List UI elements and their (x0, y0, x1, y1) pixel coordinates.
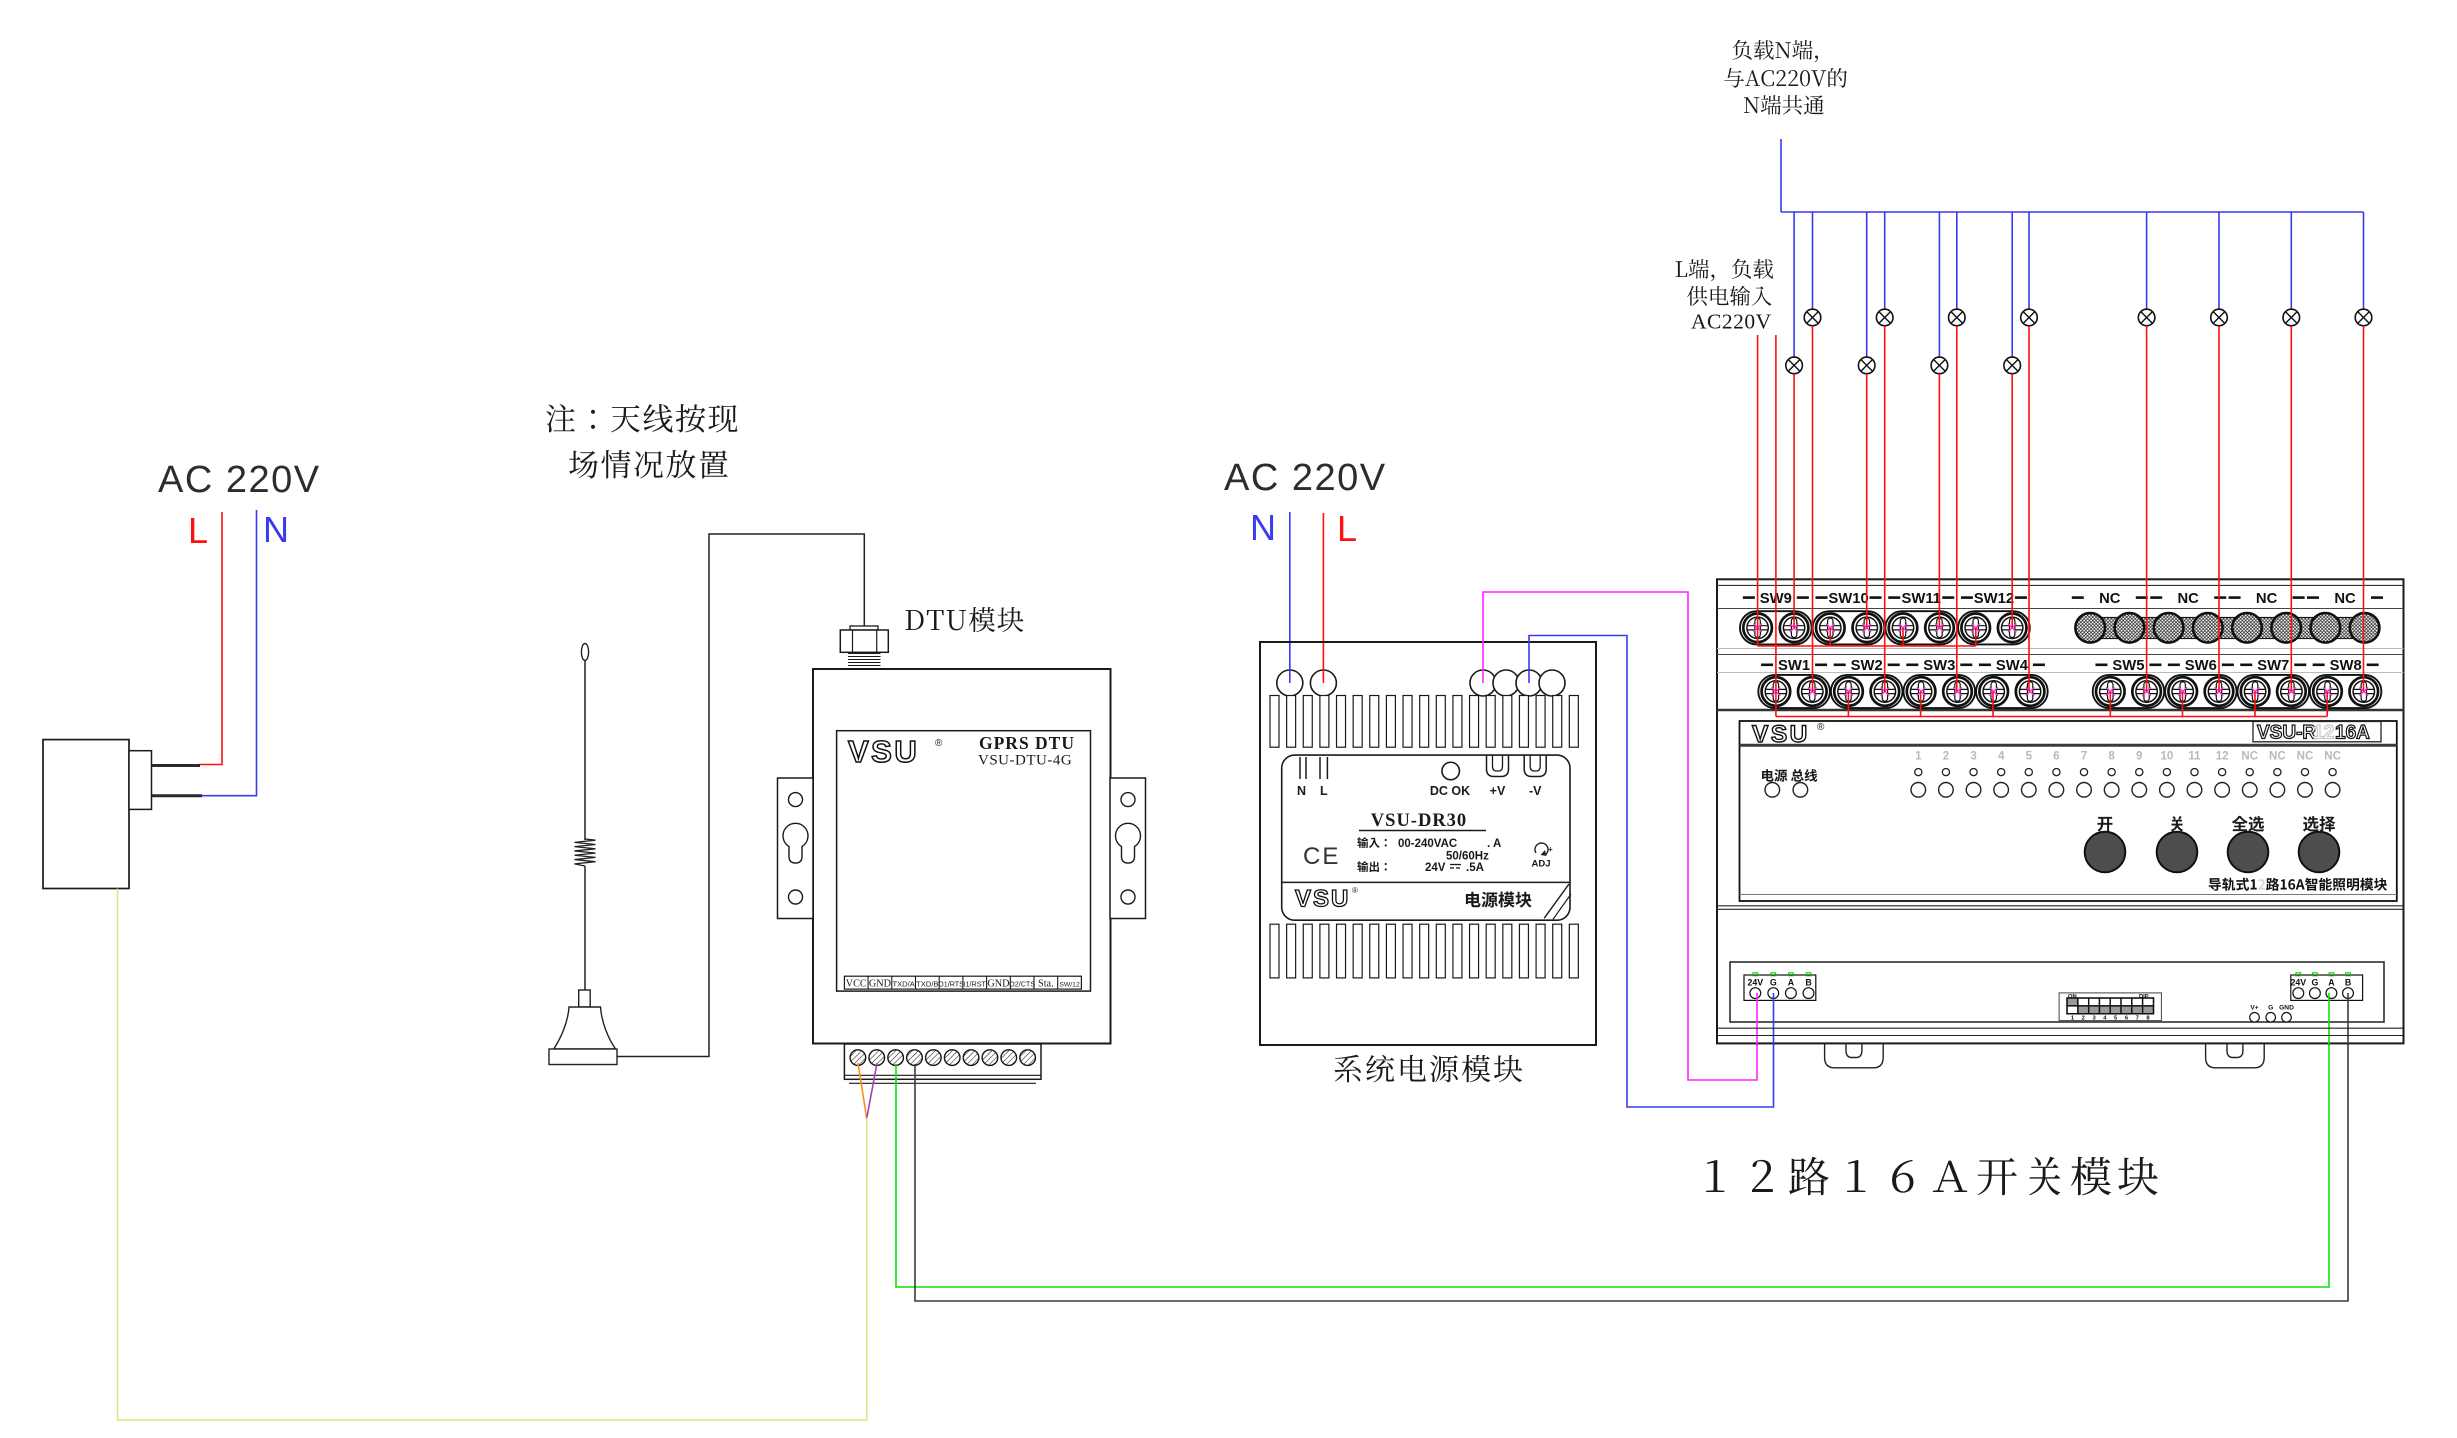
svg-text:VSU: VSU (848, 734, 919, 769)
svg-text:®: ® (1352, 886, 1358, 895)
svg-text:9: 9 (2136, 751, 2142, 763)
svg-text:NC: NC (2099, 591, 2121, 607)
svg-text:.5A: .5A (1466, 862, 1484, 874)
svg-text:NC: NC (2178, 591, 2200, 607)
svg-text:GND: GND (987, 978, 1009, 989)
svg-text:O2/CTS: O2/CTS (1009, 979, 1035, 988)
svg-text:®: ® (1817, 722, 1825, 733)
svg-text:®: ® (935, 738, 943, 749)
svg-text:ADJ: ADJ (1531, 859, 1550, 870)
svg-text:GND: GND (2279, 1005, 2294, 1012)
svg-text:AC220V: AC220V (1691, 310, 1772, 334)
svg-text:SW10: SW10 (1828, 591, 1868, 607)
svg-text:+: + (1548, 845, 1553, 854)
svg-text:SW6: SW6 (2185, 658, 2217, 674)
svg-text:I1/RST: I1/RST (964, 979, 987, 988)
svg-text:A: A (2328, 978, 2335, 988)
svg-text:3: 3 (1970, 751, 1976, 763)
svg-text:12: 12 (2313, 723, 2334, 744)
svg-text:VCC: VCC (846, 978, 867, 989)
svg-text:6: 6 (2053, 751, 2059, 763)
svg-text:TXD/B: TXD/B (916, 979, 938, 988)
svg-text:4: 4 (1998, 751, 2005, 763)
svg-text:24V: 24V (1425, 862, 1446, 874)
svg-text:GPRS DTU: GPRS DTU (979, 733, 1075, 753)
svg-text:+V: +V (1490, 784, 1506, 798)
svg-text:VSU-DTU-4G: VSU-DTU-4G (978, 753, 1072, 769)
svg-text:VSU-DR30: VSU-DR30 (1371, 811, 1467, 831)
svg-text:A: A (1788, 978, 1795, 988)
svg-text:SW12: SW12 (1974, 591, 2014, 607)
svg-text:G: G (2268, 1005, 2273, 1012)
svg-text:N: N (1297, 784, 1306, 798)
svg-text:7: 7 (2081, 751, 2087, 763)
svg-text:16A: 16A (2335, 723, 2370, 744)
svg-text:AC 220V: AC 220V (158, 459, 321, 501)
svg-text:SW8: SW8 (2330, 658, 2362, 674)
svg-text:5: 5 (2026, 751, 2033, 763)
svg-text:SW4: SW4 (1996, 658, 2029, 674)
svg-text:L: L (1320, 784, 1328, 798)
svg-text:DC OK: DC OK (1430, 784, 1470, 798)
svg-text:NC: NC (2324, 751, 2341, 763)
svg-text:SW/12: SW/12 (1059, 981, 1080, 988)
svg-text:SW11: SW11 (1902, 591, 1941, 607)
svg-text:SW2: SW2 (1851, 658, 1883, 674)
svg-text:24V: 24V (1747, 978, 1763, 988)
svg-text:-V: -V (1529, 784, 1542, 798)
svg-text:TXD/A: TXD/A (892, 979, 915, 988)
svg-text:GND: GND (869, 978, 891, 989)
svg-text:L: L (1337, 508, 1357, 549)
svg-text:SW7: SW7 (2257, 658, 2289, 674)
svg-text:B: B (1805, 978, 1811, 988)
svg-text:1: 1 (1915, 751, 1922, 763)
svg-text:. A: . A (1487, 838, 1501, 850)
svg-text:O1/RTS: O1/RTS (938, 979, 964, 988)
svg-text:VSU-R: VSU-R (2257, 723, 2316, 744)
svg-text:Sta.: Sta. (1038, 978, 1054, 989)
svg-text:24V: 24V (2290, 978, 2306, 988)
svg-text:SW1: SW1 (1778, 658, 1810, 674)
svg-text:8: 8 (2108, 751, 2115, 763)
svg-text:NC: NC (2334, 591, 2356, 607)
svg-text:B: B (2345, 978, 2351, 988)
svg-text:00-240VAC: 00-240VAC (1398, 838, 1457, 850)
svg-text:7: 7 (2136, 1016, 2139, 1022)
svg-text:SW3: SW3 (1923, 658, 1955, 674)
svg-text:G: G (2311, 978, 2318, 988)
svg-text:VSU: VSU (1295, 886, 1350, 913)
svg-text:V+: V+ (2250, 1005, 2258, 1012)
svg-text:NC: NC (2241, 751, 2258, 763)
svg-text:2: 2 (1943, 751, 1949, 763)
svg-text:N: N (263, 509, 289, 550)
svg-text:CE: CE (1303, 843, 1340, 870)
svg-text:NC: NC (2256, 591, 2278, 607)
svg-text:NC: NC (2297, 751, 2314, 763)
svg-text:NC: NC (2269, 751, 2286, 763)
svg-text:11: 11 (2188, 751, 2201, 763)
svg-text:N: N (1250, 507, 1276, 548)
svg-text:L: L (188, 510, 208, 551)
svg-text:10: 10 (2160, 751, 2173, 763)
svg-text:50/60Hz: 50/60Hz (1446, 851, 1489, 863)
svg-text:G: G (1770, 978, 1777, 988)
svg-text:12: 12 (2216, 751, 2229, 763)
svg-text:AC 220V: AC 220V (1224, 457, 1387, 499)
svg-text:SW5: SW5 (2112, 658, 2144, 674)
svg-text:2: 2 (2082, 1016, 2085, 1022)
